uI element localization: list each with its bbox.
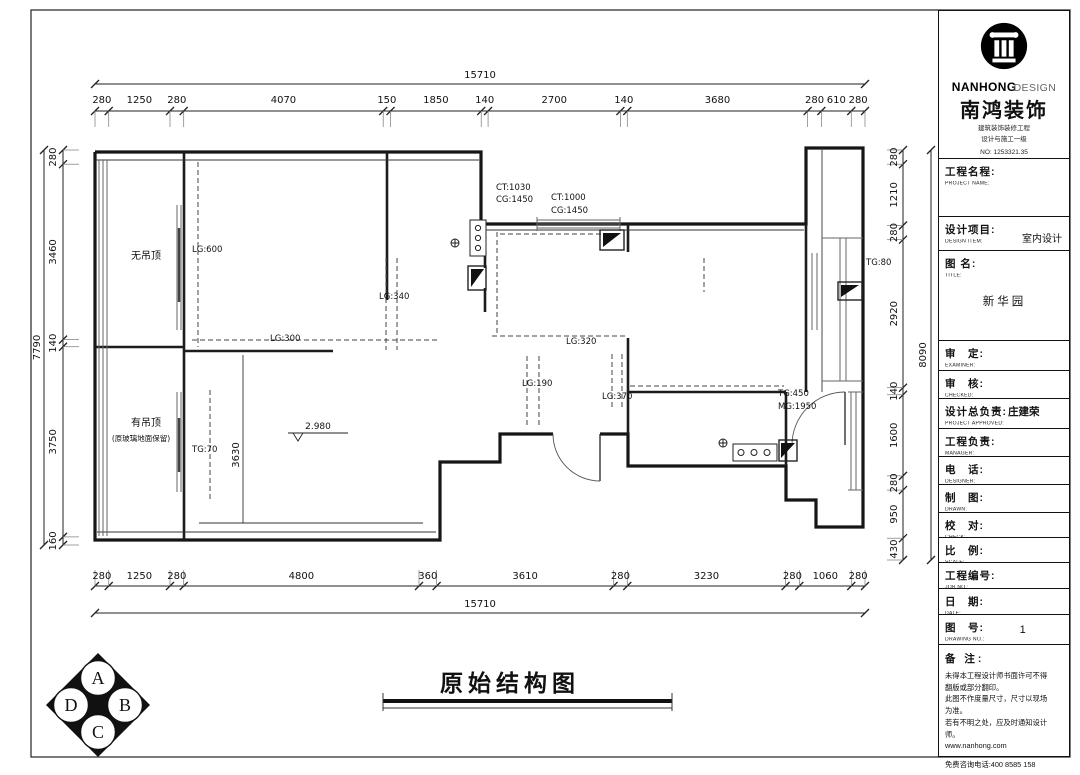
dim-overall-label: 15710 [464, 599, 496, 610]
company-name: 南鸿装饰 [939, 94, 1069, 123]
notes-label: 备 注: [945, 651, 1064, 666]
plan-label-mg1950: MG:1950 [778, 402, 816, 412]
dim-label: 280 [92, 571, 111, 582]
dim-label: 1210 [889, 182, 900, 207]
stove-fixture [733, 444, 777, 461]
titleblock-row-3: 审 定:EXAMINER: [939, 340, 1069, 370]
switch-panel [470, 220, 486, 256]
row-value: 新华园 [945, 293, 1064, 309]
dim-label: 1060 [813, 571, 838, 582]
window-living [812, 253, 817, 330]
dim-label: 150 [377, 95, 396, 106]
plan-label-lg370: LG:370 [602, 392, 632, 402]
row-label-en: PROJECT NAME: [945, 181, 1046, 186]
note-line: 免费咨询电话:400 8585 158 [945, 759, 1064, 771]
titleblock-row-2: 图 名:TITLE:新华园 [939, 250, 1069, 340]
plan-label-lg600: LG:600 [192, 245, 222, 255]
window-top-mid [537, 217, 620, 231]
dim-label: 2920 [889, 301, 900, 326]
titleblock-row-8: 制 图:DRAWN: [939, 484, 1069, 512]
titleblock-row-5: 设计总负责:庄建荣PROJECT APPROVED: [939, 398, 1069, 428]
dim-label: 610 [827, 95, 846, 106]
titleblock-row-9: 校 对:CHECK: [939, 512, 1069, 537]
logo-bold: NANHONG [952, 80, 1017, 94]
note-line: 此图不作度量尺寸，尺寸以现场 [945, 693, 1064, 705]
plan-label-lg340: LG:340 [379, 292, 409, 302]
window-bay-right [822, 238, 863, 381]
title-block: NANHONGDESIGN 南鸿装饰 建筑装饰装修工程 设计与施工一级 NO: … [938, 10, 1070, 757]
note-line: www.nanhong.com [945, 740, 1064, 752]
note-line: 未得本工程设计师书面许可不得 [945, 670, 1064, 682]
dim-label: 280 [92, 95, 111, 106]
row-label-cn: 电 话: [945, 464, 984, 476]
dim-label: 3230 [694, 571, 719, 582]
plan-label-lg320: LG:320 [566, 337, 596, 347]
dim-label: 1850 [423, 95, 448, 106]
cert-line-2: 设计与施工一级 [939, 134, 1069, 145]
logo-wordmark: NANHONGDESIGN [939, 80, 1069, 94]
plan-label-tg450: TG:450 [777, 389, 809, 399]
titleblock-row-11: 工程编号:JOB NO.: [939, 562, 1069, 588]
grid-letter-d: D [65, 695, 78, 715]
note-line: 翻版或部分翻印。 [945, 682, 1064, 694]
cert-number: NO: 1253321.35 [939, 147, 1069, 158]
row-label-cn: 设计总负责: [945, 406, 1007, 418]
dim-label: 280 [48, 148, 59, 167]
dim-label: 360 [418, 571, 437, 582]
floor-plan-canvas: 2801250280407015018501402700140368028061… [0, 0, 1080, 767]
row-label-cn: 比 例: [945, 545, 984, 557]
nanhong-logo-icon [976, 21, 1032, 73]
row-label-en: EXAMINER: [945, 363, 1046, 368]
drain-symbol [719, 439, 727, 447]
titleblock-notes: 备 注: 未得本工程设计师书面许可不得翻版或部分翻印。此图不作度量尺寸，尺寸以现… [939, 644, 1069, 774]
right-room-door-arc [792, 392, 845, 445]
plan-label-layer: 无吊顶有吊顶(原玻璃地面保留)LG:600LG:340LG:300LG:320L… [112, 183, 892, 468]
note-line: 师。 [945, 729, 1064, 741]
titleblock-row-4: 审 核:CHECKED: [939, 370, 1069, 398]
row-value: 庄建荣 [1008, 406, 1040, 418]
plan-label-cg1450a: CG:1450 [496, 195, 533, 205]
drawing-title: 原始结构图 [440, 670, 580, 696]
plan-label-has_ceiling: 有吊顶 [131, 416, 161, 429]
dimension-chain-left: 280346014037501607790 [32, 146, 79, 550]
row-value: 1 [1020, 624, 1026, 636]
dim-label: 160 [48, 531, 59, 550]
note-line: 若有不明之处，应及时通知设计 [945, 717, 1064, 729]
dimension-chain-bottom: 2801250280480036036102803230280106028015… [91, 570, 869, 617]
plan-label-has_ceiling_note: (原玻璃地面保留) [112, 433, 170, 443]
dim-label: 280 [889, 473, 900, 492]
row-value: 室内设计 [1022, 230, 1062, 245]
plan-label-tg70: TG:70 [191, 445, 217, 455]
plan-label-lg190: LG:190 [522, 379, 552, 389]
titleblock-rows: 工程名程:PROJECT NAME:设计项目:DESIGN ITEM:室内设计图… [939, 158, 1069, 644]
row-label-cn: 工程负责: [945, 436, 996, 448]
dim-label: 3750 [48, 429, 59, 454]
dim-label: 3680 [705, 95, 730, 106]
dim-label: 950 [889, 505, 900, 524]
dim-label: 280 [167, 95, 186, 106]
dim-overall-label: 8090 [918, 342, 929, 367]
dim-overall-label: 7790 [32, 335, 43, 360]
dim-label: 280 [167, 571, 186, 582]
titleblock-row-7: 电 话:DESIGNER: [939, 456, 1069, 484]
row-label-cn: 审 核: [945, 378, 984, 390]
drawing-title-group: 原始结构图 [383, 670, 672, 711]
company-header: NANHONGDESIGN 南鸿装饰 建筑装饰装修工程 设计与施工一级 NO: … [939, 11, 1069, 158]
row-label-en: TITLE: [945, 273, 1046, 278]
row-label-cn: 图 名: [945, 258, 976, 270]
row-label-cn: 校 对: [945, 520, 984, 532]
row-label-en: DRAWING NO.: [945, 637, 1046, 642]
dim-label: 140 [475, 95, 494, 106]
dim-label: 280 [783, 571, 802, 582]
dim-label: 280 [805, 95, 824, 106]
titleblock-row-13: 图 号:DRAWING NO.:1 [939, 614, 1069, 644]
title-underline-thick [383, 699, 672, 703]
dimension-chain-right: 2801210280292014016002809504308090 [887, 146, 935, 564]
interior-walls [95, 152, 806, 540]
entry-door-arc [553, 434, 600, 481]
dimension-chain-top: 2801250280407015018501402700140368028061… [91, 70, 869, 127]
dim-label: 280 [611, 571, 630, 582]
row-label-cn: 图 号: [945, 622, 984, 634]
dim-label: 1600 [889, 423, 900, 448]
dim-label: 1250 [127, 95, 152, 106]
row-label-en: PROJECT APPROVED: [945, 421, 1046, 426]
grid-letter-a: A [92, 668, 105, 688]
row-label-cn: 审 定: [945, 348, 984, 360]
grid-letter-b: B [119, 695, 131, 715]
note-line: 为准。 [945, 705, 1064, 717]
cert-line-1: 建筑装饰装修工程 [939, 123, 1069, 134]
titleblock-row-0: 工程名程:PROJECT NAME: [939, 158, 1069, 216]
window-right-lower [848, 392, 863, 490]
dim-label: 2700 [542, 95, 567, 106]
beam-dashed-lines [192, 162, 784, 502]
plan-label-elev2980: 2.980 [305, 422, 331, 432]
plan-label-ct1000: CT:1000 [551, 193, 586, 203]
titleblock-row-1: 设计项目:DESIGN ITEM:室内设计 [939, 216, 1069, 250]
dim-overall-label: 15710 [464, 70, 496, 81]
grid-badge: A B C D [46, 653, 150, 757]
dim-label: 280 [849, 95, 868, 106]
plan-label-tg80: TG:80 [865, 258, 891, 268]
dim-label: 3610 [512, 571, 537, 582]
dim-label: 140 [614, 95, 633, 106]
titleblock-row-6: 工程负责:MANAGER: [939, 428, 1069, 456]
dim-label: 280 [889, 223, 900, 242]
plan-label-cg1450b: CG:1450 [551, 206, 588, 216]
dim-label: 280 [849, 571, 868, 582]
dim-label: 280 [889, 148, 900, 167]
dim-label: 140 [48, 334, 59, 353]
titleblock-row-12: 日 期:DATE: [939, 588, 1069, 614]
row-label-cn: 工程名程: [945, 166, 996, 178]
titleblock-row-10: 比 例:SCALE: [939, 537, 1069, 562]
dim-label: 3460 [48, 239, 59, 264]
dim-label: 4800 [289, 571, 314, 582]
plan-label-no_ceiling: 无吊顶 [131, 250, 161, 262]
logo-light: DESIGN [1014, 82, 1057, 94]
window-sill-markers [468, 230, 862, 461]
dim-label: 430 [889, 540, 900, 559]
plan-label-dim3630: 3630 [231, 442, 242, 467]
dim-label: 1250 [127, 571, 152, 582]
drain-symbol [451, 239, 459, 247]
row-label-cn: 工程编号: [945, 570, 996, 582]
elevation-marker [288, 433, 348, 441]
grid-letter-c: C [92, 722, 104, 742]
dim-label: 4070 [271, 95, 296, 106]
row-label-cn: 制 图: [945, 492, 984, 504]
row-label-cn: 设计项目: [945, 224, 996, 236]
row-label-cn: 日 期: [945, 596, 984, 608]
plan-label-lg300: LG:300 [270, 334, 300, 344]
dim-label: 140 [889, 382, 900, 401]
plan-label-ct1030: CT:1030 [496, 183, 531, 193]
